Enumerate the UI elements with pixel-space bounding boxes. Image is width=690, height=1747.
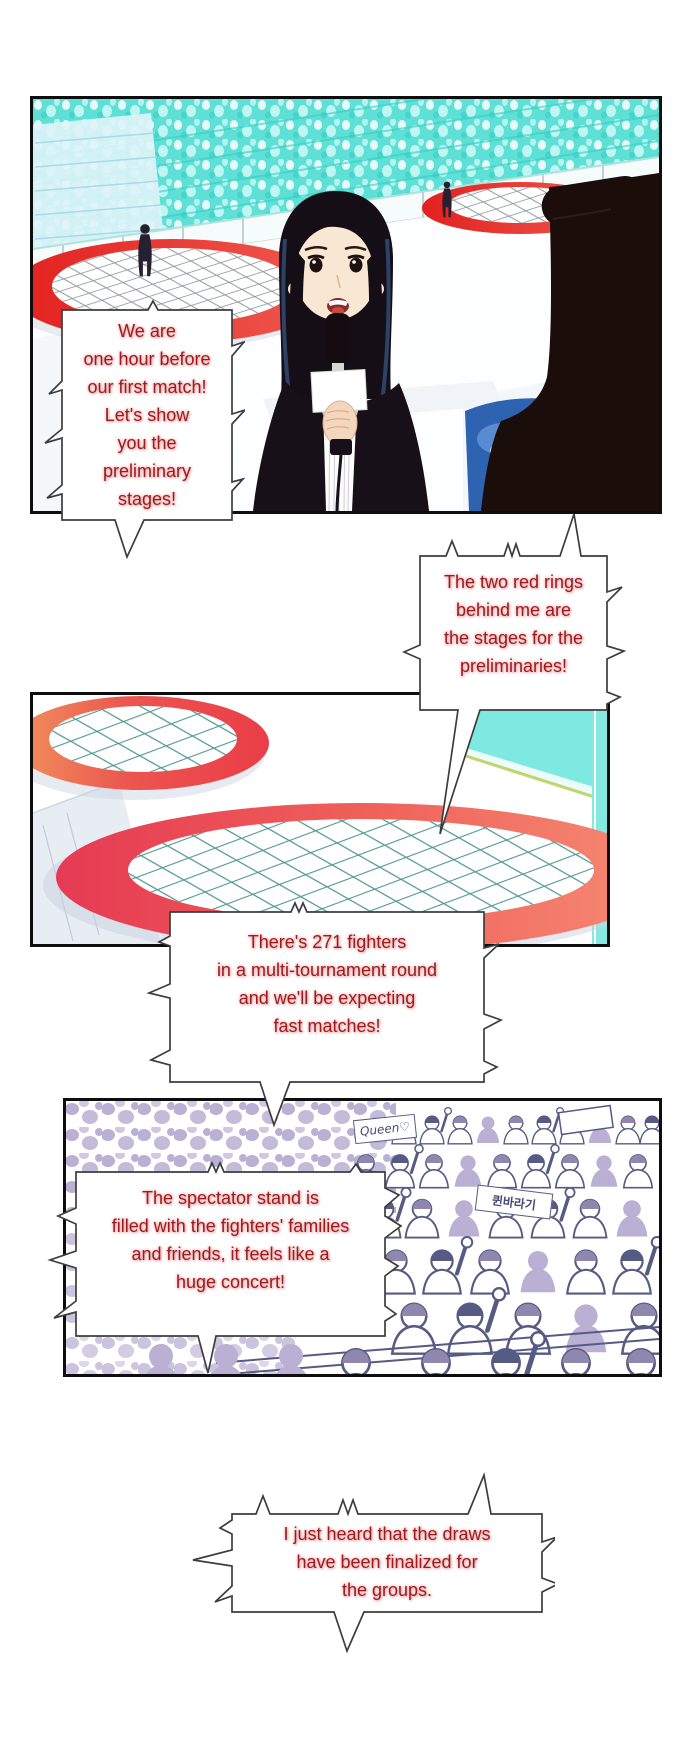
speech-bubble-3-text: There's 271 fighters in a multi-tourname… — [170, 928, 484, 1040]
speech-bubble-4-text: The spectator stand is filled with the f… — [76, 1184, 385, 1296]
speech-bubble-3: There's 271 fighters in a multi-tourname… — [128, 898, 528, 1138]
speech-bubble-5: I just heard that the draws have been fi… — [190, 1468, 555, 1653]
speech-bubble-4: The spectator stand is filled with the f… — [20, 1158, 415, 1383]
speech-bubble-5-text: I just heard that the draws have been fi… — [232, 1520, 542, 1604]
speech-bubble-1: We are one hour before our first match! … — [30, 298, 245, 563]
webtoon-page: Queen♡ 퀸바라기 We are one hour before our f… — [0, 0, 690, 1747]
speech-bubble-1-text: We are one hour before our first match! … — [62, 317, 232, 513]
speech-bubble-2-text: The two red rings behind me are the stag… — [420, 568, 607, 680]
speech-bubble-2: The two red rings behind me are the stag… — [402, 498, 632, 848]
